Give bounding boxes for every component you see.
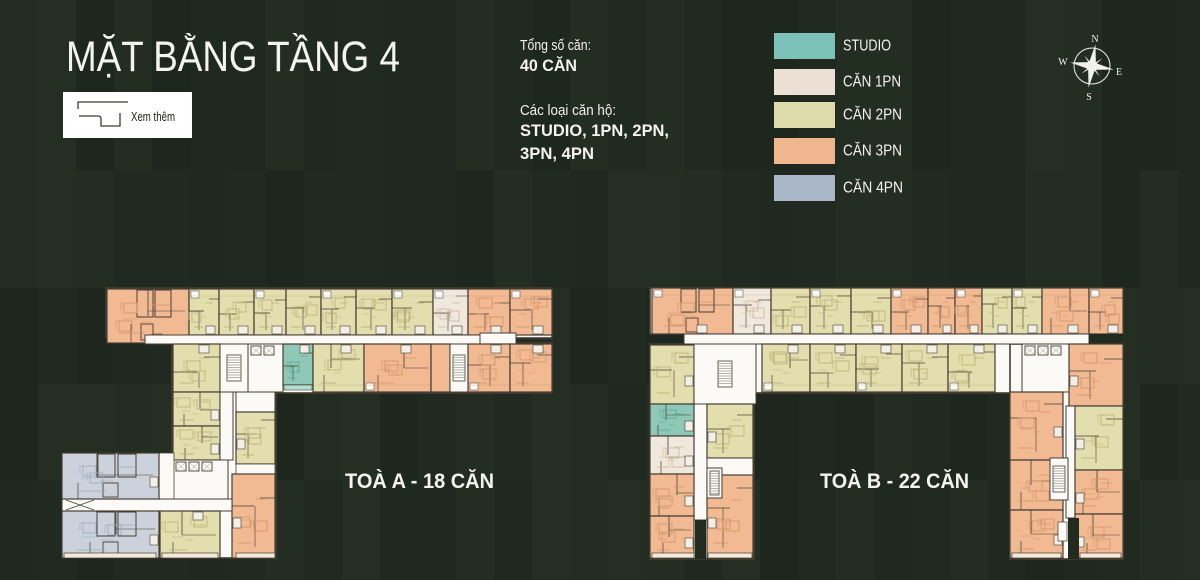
svg-text:CĂN 4PN: CĂN 4PN [843, 178, 903, 197]
svg-text:CĂN 2PN: CĂN 2PN [843, 105, 902, 124]
svg-text:STUDIO: STUDIO [843, 38, 891, 55]
svg-text:Tổng số căn:: Tổng số căn: [520, 37, 591, 54]
svg-text:N: N [1091, 34, 1098, 45]
svg-text:MẶT BẰNG TẦNG 4: MẶT BẰNG TẦNG 4 [66, 33, 400, 81]
svg-text:W: W [1058, 57, 1068, 68]
svg-text:E: E [1116, 67, 1122, 78]
svg-text:TOÀ A - 18 CĂN: TOÀ A - 18 CĂN [345, 470, 494, 493]
svg-text:CĂN 1PN: CĂN 1PN [843, 72, 901, 91]
svg-text:Các loại căn hộ:: Các loại căn hộ: [520, 102, 616, 119]
svg-text:CĂN 3PN: CĂN 3PN [843, 141, 902, 160]
svg-text:S: S [1086, 92, 1092, 103]
svg-text:STUDIO, 1PN, 2PN,: STUDIO, 1PN, 2PN, [520, 121, 669, 140]
svg-text:3PN, 4PN: 3PN, 4PN [520, 144, 594, 163]
svg-text:40 CĂN: 40 CĂN [520, 56, 577, 75]
svg-text:TOÀ B - 22 CĂN: TOÀ B - 22 CĂN [820, 470, 969, 493]
svg-text:Xem thêm: Xem thêm [131, 109, 175, 124]
